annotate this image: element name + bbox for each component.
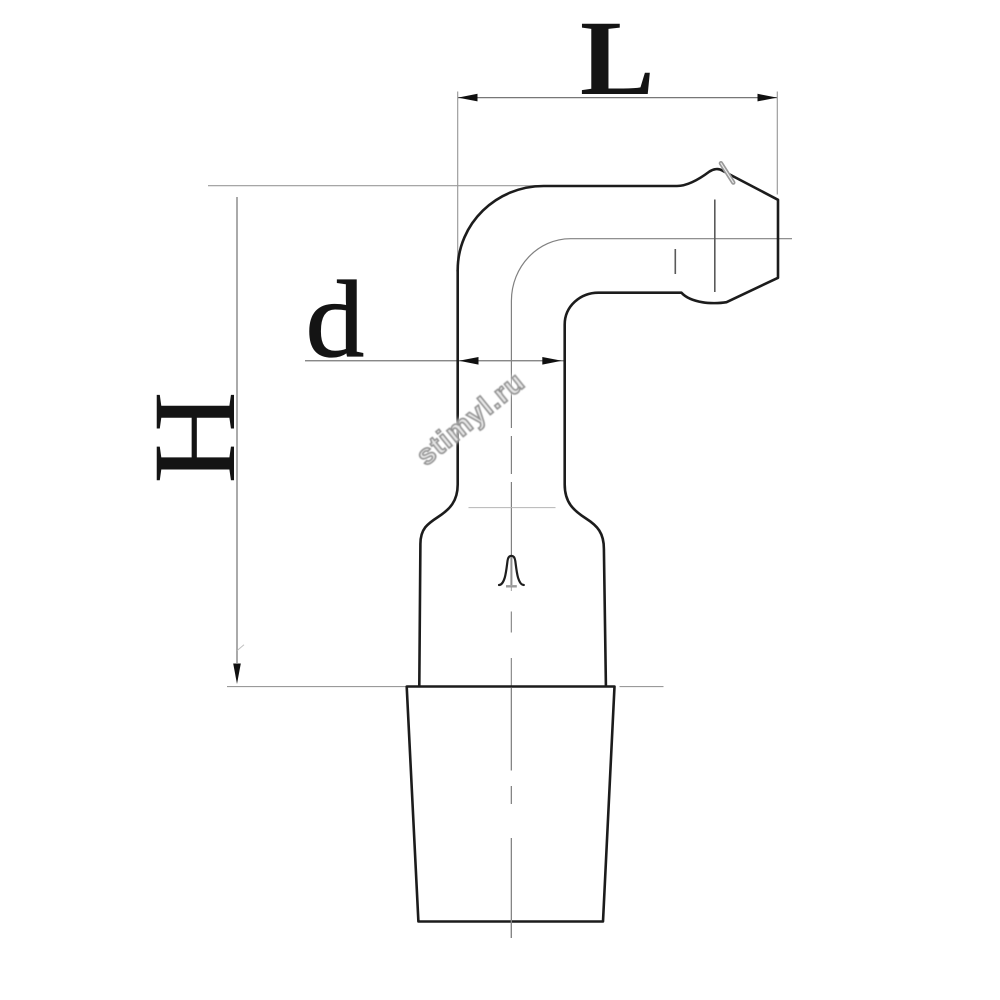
svg-text:L: L: [580, 0, 655, 118]
svg-text:H: H: [129, 391, 260, 484]
svg-text:d: d: [306, 259, 364, 380]
